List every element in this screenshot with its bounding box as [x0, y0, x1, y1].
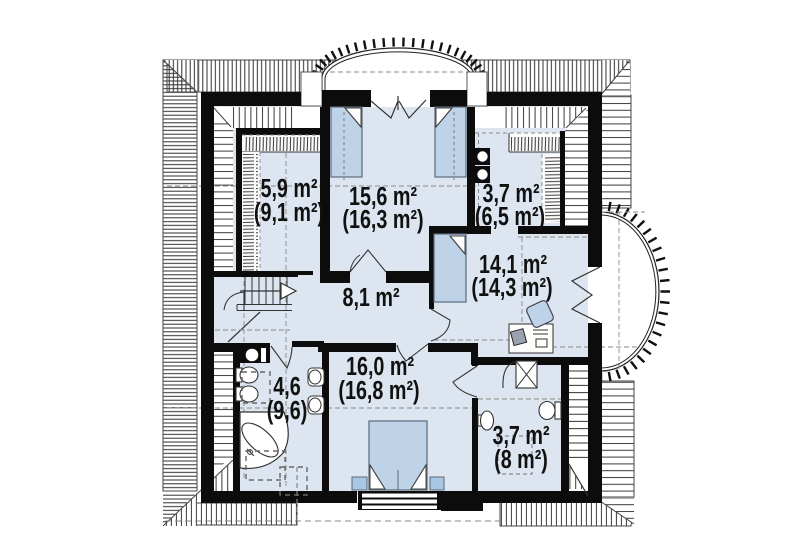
svg-text:8,1 m²: 8,1 m² [342, 282, 399, 311]
svg-text:(16,3 m²): (16,3 m²) [342, 204, 423, 233]
svg-text:(6,5 m²): (6,5 m²) [475, 201, 545, 230]
svg-text:(16,8 m²): (16,8 m²) [338, 375, 419, 404]
svg-text:(14,3 m²): (14,3 m²) [471, 272, 552, 301]
svg-text:(8 m²): (8 m²) [494, 444, 548, 473]
svg-text:(9,6): (9,6) [267, 395, 308, 424]
svg-text:(9,1 m²): (9,1 m²) [254, 197, 324, 226]
